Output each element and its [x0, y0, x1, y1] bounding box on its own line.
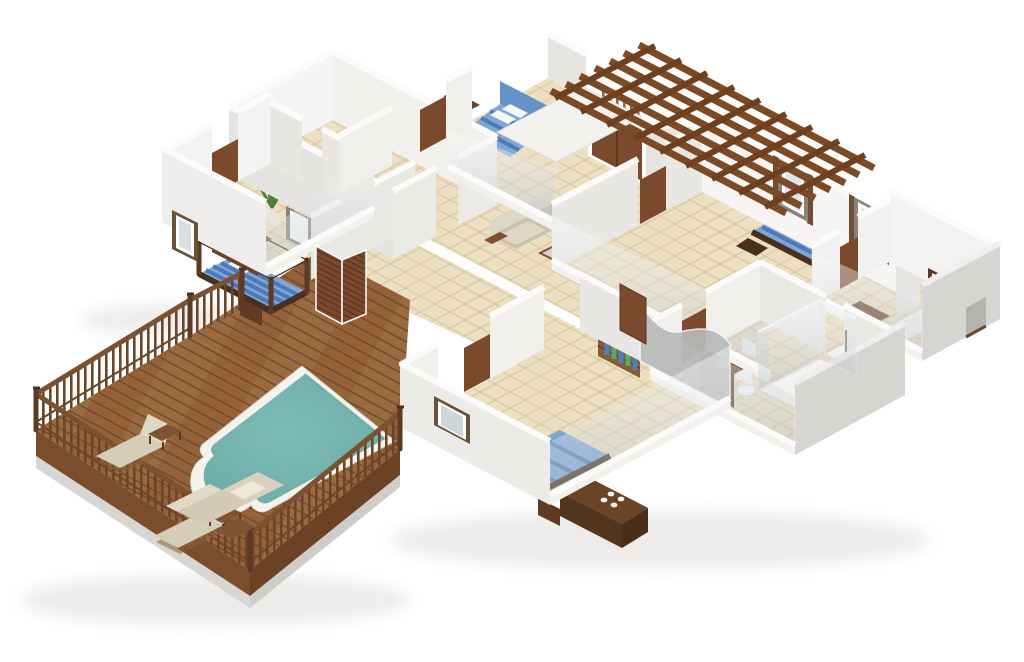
- floor-plan-render: [0, 0, 1024, 662]
